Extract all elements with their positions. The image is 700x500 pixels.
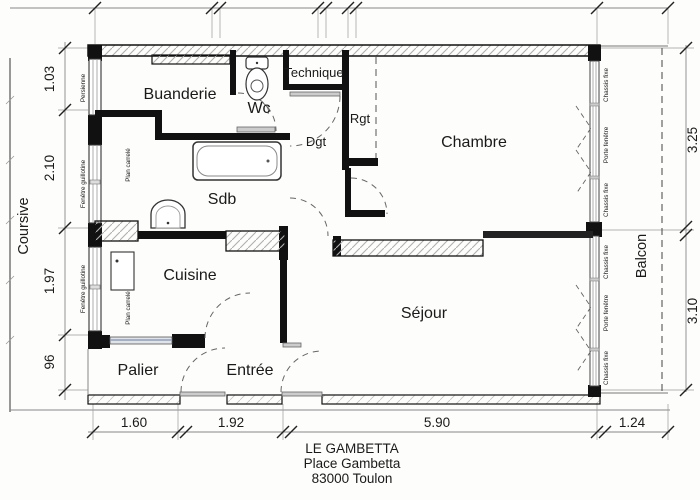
sejour-label: Séjour [401, 305, 448, 322]
wc-label: Wc [247, 100, 270, 117]
floor-plan-page: 1.03 2.10 1.97 96 Coursive 3.25 3.10 [0, 0, 700, 500]
chambre-window [590, 61, 599, 222]
rgt-label: Rgt [350, 111, 371, 126]
chassis-fixe-label-2: Chassis fixe [603, 183, 610, 217]
plan-carrele-label-2: Plan carrelé [125, 291, 132, 325]
project-name: LE GAMBETTA [305, 441, 399, 456]
plan-carrele-label-1: Plan carrelé [125, 148, 132, 182]
window-opening-chevrons [576, 106, 591, 373]
porte-fenetre-label-1: Porte fenêtre [603, 126, 610, 163]
guillotine-label-2: Fenêtre guillotine [80, 264, 87, 313]
cuisine-door-arc [205, 293, 250, 338]
dim-left-2: 2.10 [42, 155, 57, 181]
radiator [110, 337, 172, 344]
persienne-label: Persienne [80, 73, 87, 102]
buanderie-label: Buanderie [144, 86, 217, 103]
left-windows [89, 59, 101, 331]
sdb-label: Sdb [208, 191, 237, 208]
dim-bottom-1: 1.60 [121, 415, 147, 430]
bottom-dimension-line: 1.60 1.92 5.90 1.24 [87, 404, 674, 440]
coursive-label: Coursive [16, 197, 32, 254]
cuisine-label: Cuisine [163, 267, 216, 284]
chambre-door-arc [351, 178, 387, 214]
toilet [246, 57, 268, 100]
kitchen-sink [111, 252, 134, 290]
dim-right-2: 3.10 [685, 298, 700, 324]
persienne-window [89, 59, 101, 115]
chambre-label: Chambre [441, 134, 507, 151]
top-dimension-line [10, 2, 674, 44]
title-block: LE GAMBETTA Place Gambetta 83000 Toulon [304, 441, 401, 486]
entree-label: Entrée [226, 362, 273, 379]
balcon-label: Balcon [634, 234, 650, 278]
floor-plan-drawing: 1.03 2.10 1.97 96 Coursive 3.25 3.10 [0, 0, 700, 500]
dim-bottom-2: 1.92 [218, 415, 244, 430]
chassis-fixe-label-1: Chassis fixe [603, 68, 610, 102]
technique-label: Technique [284, 65, 343, 80]
sdb-door-arc [290, 198, 328, 236]
guillotine-window-2 [89, 247, 101, 331]
porte-fenetre-label-2: Porte fenêtre [603, 294, 610, 331]
dim-left-3: 1.97 [42, 268, 57, 294]
dim-right-1: 3.25 [685, 127, 700, 153]
chassis-fixe-label-3: Chassis fixe [603, 245, 610, 279]
project-city: 83000 Toulon [312, 471, 393, 486]
project-address: Place Gambetta [304, 456, 401, 471]
chassis-fixe-label-4: Chassis fixe [603, 351, 610, 385]
right-dimension-line: 3.25 3.10 [600, 42, 700, 396]
sejour-window [590, 236, 599, 386]
dim-left-1: 1.03 [42, 66, 57, 92]
dim-bottom-3: 5.90 [424, 415, 450, 430]
guillotine-window-1 [89, 145, 101, 223]
entree-sejour-door-arc [281, 351, 322, 392]
dgt-label: Dgt [306, 134, 327, 149]
dim-left-4: 96 [42, 354, 57, 369]
dim-bottom-4: 1.24 [619, 415, 646, 430]
guillotine-label-1: Fenêtre guillotine [80, 159, 87, 208]
palier-label: Palier [118, 362, 160, 379]
bathroom-sink [151, 200, 185, 228]
bathtub [193, 142, 281, 180]
palier-entree-door-arc [181, 348, 225, 392]
